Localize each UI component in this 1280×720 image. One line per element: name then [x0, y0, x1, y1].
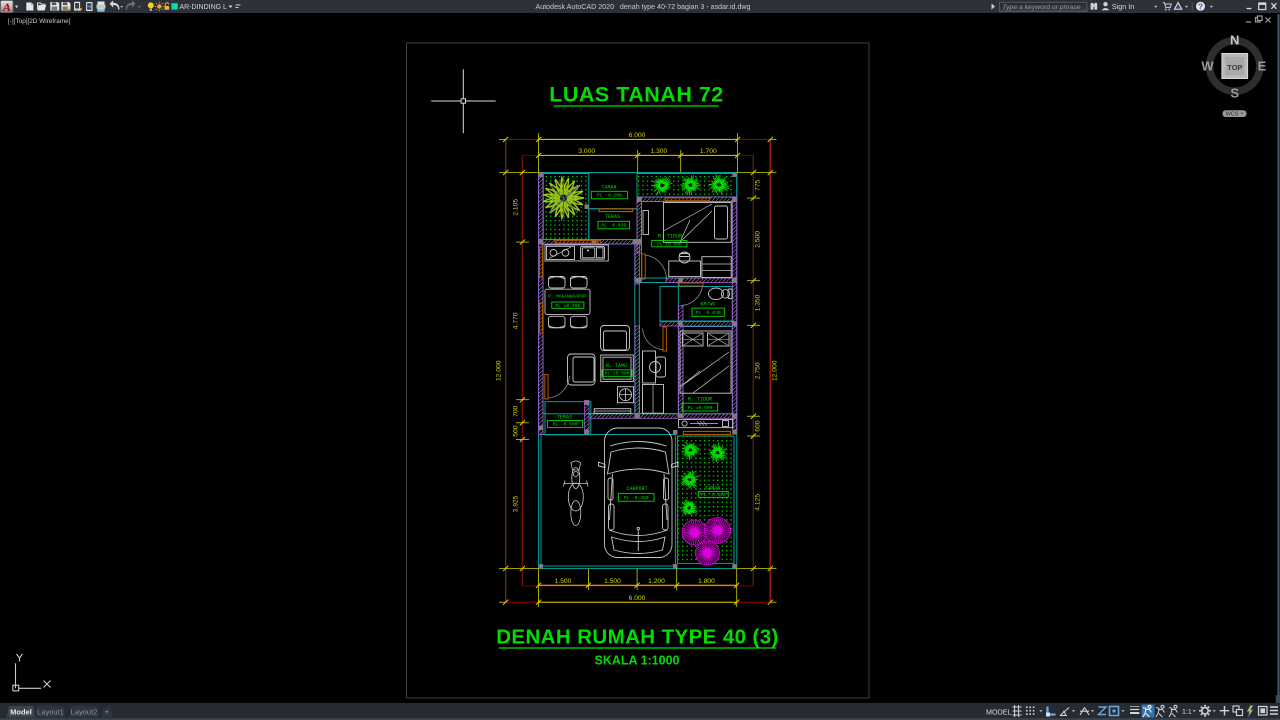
svg-text:1.700: 1.700 [700, 148, 717, 155]
svg-text:2.105: 2.105 [512, 199, 519, 216]
svg-text:Layout1: Layout1 [37, 708, 64, 717]
svg-text:PL -0.200: PL -0.200 [701, 492, 726, 498]
svg-text:S: S [1230, 86, 1239, 101]
svg-text:1.500: 1.500 [604, 578, 621, 585]
svg-text:SKALA 1:1000: SKALA 1:1000 [595, 654, 680, 668]
svg-text:12.000: 12.000 [772, 360, 779, 381]
svg-text:12.000: 12.000 [496, 360, 503, 381]
svg-text:1.500: 1.500 [555, 578, 572, 585]
svg-text:1.300: 1.300 [651, 148, 668, 155]
svg-text:PL ±0.000: PL ±0.000 [605, 371, 630, 377]
svg-text:TAMAN: TAMAN [705, 486, 720, 492]
svg-text:2.500: 2.500 [755, 231, 762, 248]
svg-text:?: ? [1198, 1, 1203, 11]
svg-text:4.125: 4.125 [755, 494, 762, 511]
svg-text:W: W [1201, 59, 1214, 74]
svg-text:PL ±0.000: PL ±0.000 [657, 241, 682, 247]
svg-text:500: 500 [512, 425, 519, 436]
svg-text:PL -0.030: PL -0.030 [696, 310, 721, 316]
svg-text:+: + [104, 708, 109, 717]
svg-text:PL -0.030: PL -0.030 [601, 223, 626, 229]
svg-text:N: N [1230, 33, 1239, 48]
svg-text:TOP: TOP [1227, 63, 1242, 72]
svg-text:PL -0.000: PL -0.000 [553, 422, 578, 428]
svg-text:PL -0.250: PL -0.250 [624, 495, 649, 501]
svg-text:KM/WC: KM/WC [700, 302, 715, 308]
svg-text:R. TIDUR: R. TIDUR [658, 234, 682, 240]
svg-text:R. TAMU: R. TAMU [606, 363, 627, 369]
svg-text:6.000: 6.000 [629, 132, 646, 139]
svg-text:1.200: 1.200 [648, 578, 665, 585]
svg-text:700: 700 [512, 405, 519, 416]
svg-text:WCS: WCS [1226, 112, 1239, 118]
svg-text:AR-DINDING L: AR-DINDING L [180, 4, 228, 11]
svg-text:DENAH RUMAH TYPE 40 (3): DENAH RUMAH TYPE 40 (3) [496, 626, 779, 649]
svg-text:Model: Model [10, 708, 32, 717]
svg-text:R. TIDUR: R. TIDUR [688, 397, 712, 403]
svg-text:6.000: 6.000 [629, 595, 646, 602]
svg-text:1.800: 1.800 [698, 578, 715, 585]
svg-text:PL ±0.000: PL ±0.000 [688, 405, 713, 411]
svg-text:1:1: 1:1 [1182, 709, 1192, 716]
svg-text:E: E [1258, 59, 1267, 74]
svg-text:775: 775 [755, 179, 762, 190]
svg-text:3.925: 3.925 [512, 495, 519, 512]
svg-text:Layout2: Layout2 [71, 708, 98, 717]
svg-text:PL ±0.000: PL ±0.000 [555, 303, 580, 309]
svg-text:A: A [2, 0, 11, 13]
svg-text:600: 600 [755, 420, 762, 431]
svg-text:PL -0.200: PL -0.200 [597, 193, 622, 199]
svg-text:[-][Top][2D Wireframe]: [-][Top][2D Wireframe] [8, 18, 71, 25]
svg-text:1.350: 1.350 [755, 294, 762, 311]
svg-text:MODEL: MODEL [986, 708, 1012, 717]
svg-text:R. MAKAN&DAPUR: R. MAKAN&DAPUR [548, 294, 586, 300]
svg-text:TERAS: TERAS [557, 415, 572, 421]
svg-text:2.750: 2.750 [755, 362, 762, 379]
svg-text:TAMAN: TAMAN [601, 185, 616, 191]
svg-text:LUAS TANAH 72: LUAS TANAH 72 [549, 83, 724, 107]
svg-text:TERAS: TERAS [605, 214, 620, 220]
svg-text:Sign In: Sign In [1112, 2, 1134, 11]
svg-text:3.000: 3.000 [578, 148, 595, 155]
svg-text:Autodesk AutoCAD 2020 denah: Autodesk AutoCAD 2020 denah type 40-72 b… [536, 3, 751, 11]
svg-text:CARPORT: CARPORT [626, 486, 647, 492]
svg-text:Type a keyword or phrase: Type a keyword or phrase [1003, 4, 1081, 11]
svg-text:4.770: 4.770 [512, 312, 519, 329]
